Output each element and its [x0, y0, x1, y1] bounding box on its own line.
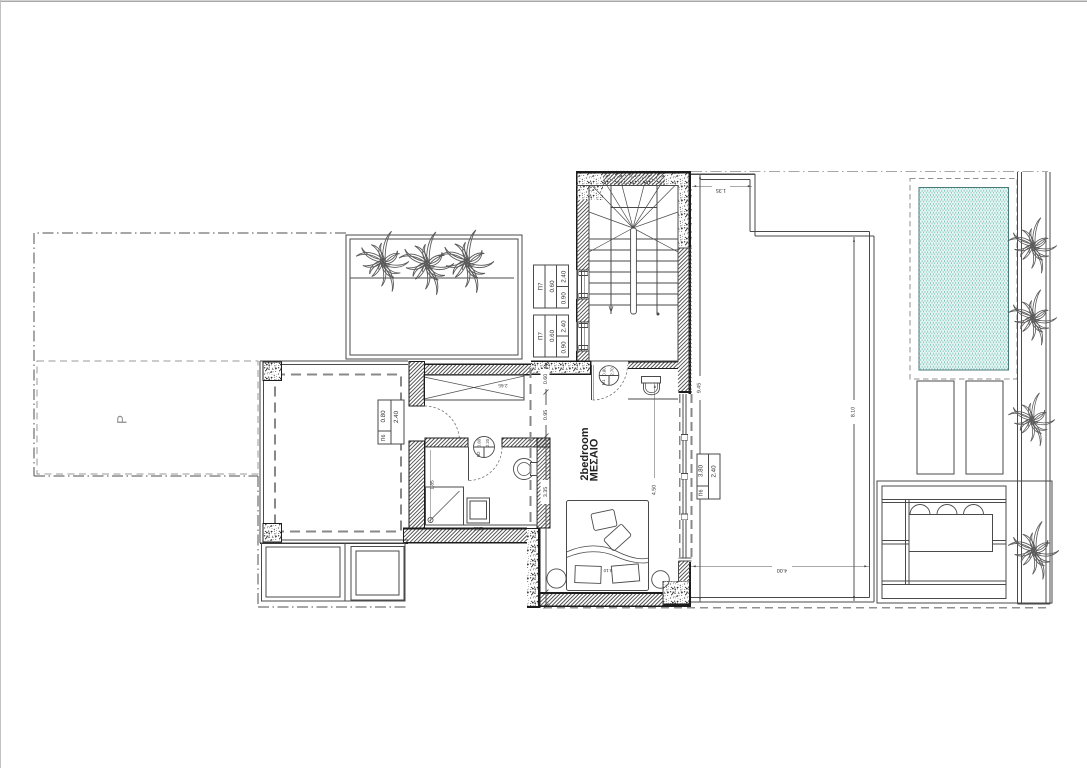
svg-text:0.60: 0.60	[549, 329, 556, 342]
svg-text:Π6: Π6	[699, 490, 705, 497]
svg-text:ΜΕΣΑΙΟ: ΜΕΣΑΙΟ	[589, 438, 601, 481]
svg-text:Π6: Π6	[381, 435, 387, 442]
svg-text:2.40: 2.40	[561, 270, 568, 283]
svg-text:1.85: 1.85	[430, 480, 436, 490]
svg-text:2.70: 2.70	[610, 367, 615, 376]
svg-text:P: P	[115, 415, 130, 424]
svg-text:2.40: 2.40	[561, 320, 568, 333]
svg-text:0.80: 0.80	[477, 438, 482, 447]
svg-text:M2: M2	[476, 451, 481, 457]
svg-text:1.35: 1.35	[716, 187, 726, 193]
svg-text:Π7: Π7	[538, 331, 545, 339]
svg-text:0.90: 0.90	[561, 341, 568, 354]
svg-text:8.10: 8.10	[851, 407, 857, 417]
svg-text:0.60: 0.60	[543, 374, 549, 384]
svg-text:0.60: 0.60	[549, 280, 556, 293]
svg-text:0.95: 0.95	[543, 410, 549, 420]
svg-text:9.45: 9.45	[697, 383, 703, 393]
svg-text:2.55: 2.55	[473, 525, 483, 531]
svg-text:3.10: 3.10	[603, 568, 612, 573]
svg-text:M1: M1	[601, 379, 606, 385]
svg-text:4.50: 4.50	[652, 485, 658, 495]
svg-text:3.35: 3.35	[543, 487, 549, 497]
svg-text:2.20: 2.20	[485, 438, 490, 447]
svg-text:0.80: 0.80	[380, 410, 387, 423]
svg-text:0.80: 0.80	[602, 367, 607, 376]
svg-text:2.65: 2.65	[498, 382, 508, 388]
svg-text:2.40: 2.40	[711, 465, 718, 478]
svg-text:0.90: 0.90	[561, 292, 568, 305]
svg-text:Π7: Π7	[538, 282, 545, 290]
svg-text:4.00: 4.00	[777, 567, 787, 573]
svg-text:2.40: 2.40	[393, 410, 400, 423]
svg-text:3.80: 3.80	[698, 464, 705, 477]
